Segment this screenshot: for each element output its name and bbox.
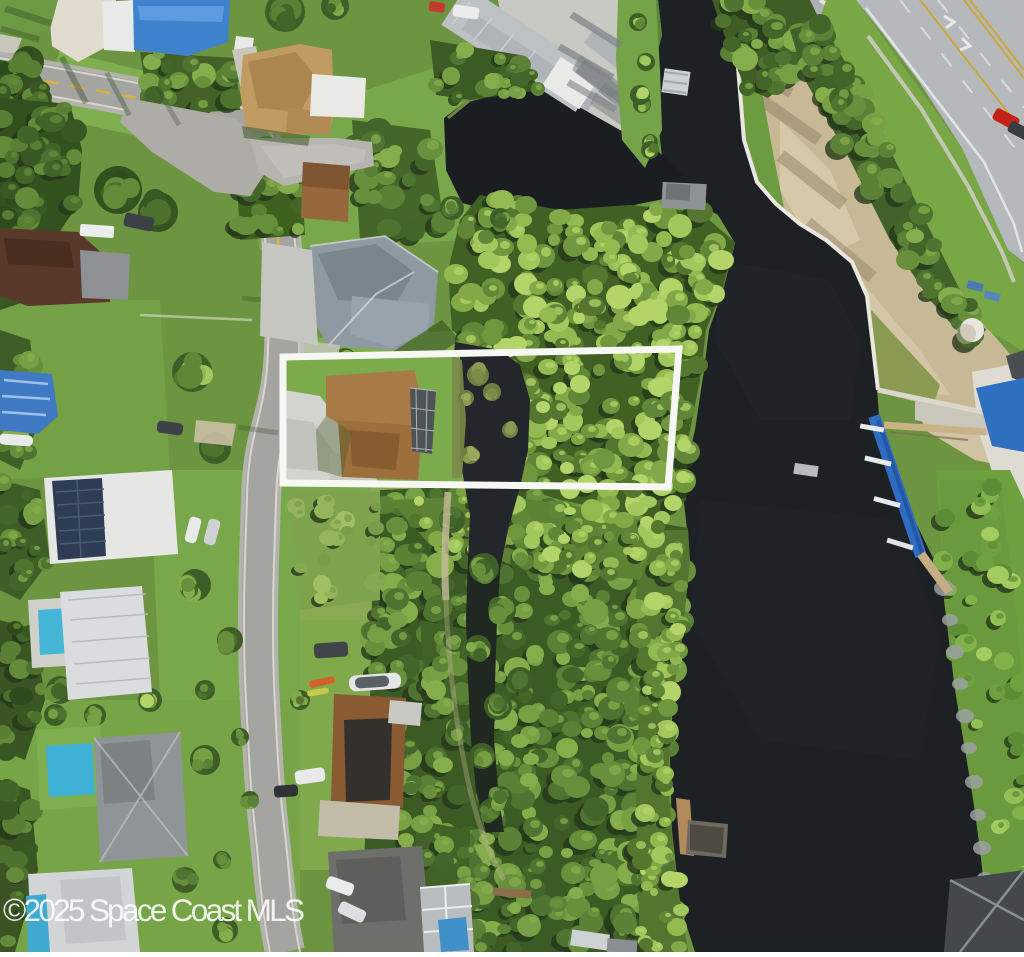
svg-text:©2025 Space Coast MLS: ©2025 Space Coast MLS — [3, 892, 305, 928]
